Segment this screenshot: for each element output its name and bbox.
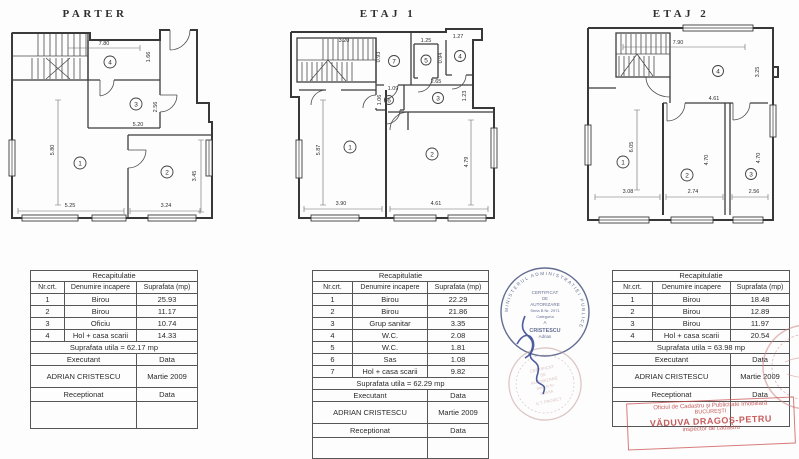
table-row: Recapitulatie	[31, 271, 198, 282]
dim-label: 3.20	[339, 38, 350, 44]
room-area: 10.74	[137, 318, 198, 330]
room-area: 2.08	[428, 330, 489, 342]
table-row	[313, 438, 489, 459]
dim-label: 3.08	[623, 189, 634, 195]
table-row: ReceptionatData	[31, 388, 198, 402]
row-nr: 3	[613, 318, 653, 330]
row-nr: 4	[613, 330, 653, 342]
room-number: 6	[387, 98, 391, 105]
room-area: 11.17	[137, 306, 198, 318]
row-nr: 2	[313, 306, 353, 318]
table-row: Nr.crt. Denumire incapere Suprafata (mp)	[313, 282, 489, 294]
table-row: 6Sas1.08	[313, 354, 489, 366]
table-row: Nr.crt. Denumire incapere Suprafata (mp)	[31, 282, 198, 294]
col-header: Suprafata (mp)	[731, 282, 790, 294]
room-area: 25.93	[137, 294, 198, 306]
dim-label: 5.20	[133, 122, 144, 128]
table-row: 4Hol + casa scarii14.33	[31, 330, 198, 342]
room-number: 1	[78, 161, 82, 168]
room-number: 2	[430, 152, 434, 159]
row-nr: 1	[613, 294, 653, 306]
row-nr: 6	[313, 354, 353, 366]
stamp-line: AUTORIZARE	[530, 302, 560, 307]
room-number: 4	[108, 60, 112, 67]
dim-label: 5.80	[50, 145, 56, 156]
total-area: Suprafata utila = 62.29 mp	[313, 378, 489, 390]
table-title: Recapitulatie	[31, 271, 198, 282]
row-nr: 4	[31, 330, 65, 342]
round-stamp-faded: CERTIFICAT DE AUTORIZARE Seria B Nr. CLA…	[502, 341, 587, 426]
total-area: Suprafata utila = 62.17 mp	[31, 342, 198, 354]
certification-stamp: MINISTERUL ADMINISTRATIEI PUBLICE CERTIF…	[497, 264, 593, 426]
room-number: 1	[348, 145, 352, 152]
room-number: 4	[716, 69, 720, 76]
room-number: 5	[424, 58, 428, 65]
cadastru-stamp: Oficiul de Cadastru şi Publicitate Imobi…	[626, 397, 796, 451]
row-nr: 1	[313, 294, 353, 306]
dim-label: 1.27	[453, 34, 464, 40]
row-nr: 7	[313, 366, 353, 378]
executant-name: ADRIAN CRISTESCU	[31, 366, 137, 388]
dim-label: 6.05	[629, 142, 635, 153]
room-area: 3.35	[428, 318, 489, 330]
room-numbers: 1 2 3 4 5 6 7	[344, 51, 466, 161]
executant-label: Executant	[613, 354, 731, 366]
executant-name: ADRIAN CRISTESCU	[613, 366, 731, 388]
door-arcs	[646, 77, 750, 121]
dim-label: 0.94	[438, 53, 444, 64]
room-number: 7	[392, 59, 396, 66]
stamp-line: A	[543, 320, 547, 325]
receptionat-label: Receptionat	[31, 388, 137, 402]
row-nr: 1	[31, 294, 65, 306]
dim-label: 3.90	[336, 201, 347, 207]
empty-cell	[428, 438, 489, 459]
room-name: Grup sanitar	[353, 318, 428, 330]
room-area: 1.81	[428, 342, 489, 354]
dim-label: 5.25	[65, 203, 76, 209]
dim-label: 4.61	[431, 201, 442, 207]
interior-walls	[588, 77, 768, 215]
data-label: Data	[428, 390, 489, 402]
room-name: Oficiu	[65, 318, 137, 330]
dim-label: 4.61	[709, 96, 720, 102]
room-area: 18.48	[731, 294, 790, 306]
table-row: Nr.crt. Denumire incapere Suprafata (mp)	[613, 282, 790, 294]
table-row: 1Birou18.48	[613, 294, 790, 306]
dim-label: 1.06	[377, 95, 383, 106]
data-label: Data	[137, 388, 198, 402]
door-arcs	[100, 30, 190, 168]
dim-label: 3.25	[755, 67, 761, 78]
dim-label: 0.93	[376, 52, 382, 63]
col-header: Nr.crt.	[613, 282, 653, 294]
col-header: Denumire incapere	[653, 282, 731, 294]
dim-label: 2.74	[688, 189, 699, 195]
table-row	[31, 402, 198, 429]
room-number: 3	[436, 96, 440, 103]
room-numbers: 1 2 3 4	[617, 66, 757, 182]
room-name: W.C.	[353, 330, 428, 342]
staircase	[297, 38, 376, 82]
windows	[585, 25, 776, 223]
table-title: Recapitulatie	[313, 271, 489, 282]
outer-walls	[291, 29, 494, 218]
stamp-line: CERTIFICAT	[532, 290, 559, 295]
room-number: 3	[134, 102, 138, 109]
dimension-lines	[18, 45, 204, 214]
empty-cell	[31, 402, 137, 429]
outer-walls	[12, 30, 212, 218]
col-header: Nr.crt.	[313, 282, 353, 294]
table-row: 5W.C.1.81	[313, 342, 489, 354]
room-numbers: 1 2 3 4	[74, 56, 173, 178]
dim-label: 4.79	[464, 157, 470, 168]
floor-plan-etaj2: ETAJ 2 7.90 3.25 4.61 6.05 4.70 4.70 3.0…	[533, 0, 799, 240]
table-row: 1Birou22.29	[313, 294, 489, 306]
stamp-line: G.T. PROIECT	[535, 396, 562, 406]
executant-label: Executant	[31, 354, 137, 366]
data-label: Data	[428, 424, 489, 438]
room-number: 3	[749, 172, 753, 179]
room-name: Birou	[65, 294, 137, 306]
table-row: 3Grup sanitar3.35	[313, 318, 489, 330]
row-nr: 2	[613, 306, 653, 318]
room-area: 22.29	[428, 294, 489, 306]
table-row: ADRIAN CRISTESCUMartie 2009	[31, 366, 198, 388]
executant-date: Martie 2009	[137, 366, 198, 388]
table-row: 2Birou21.86	[313, 306, 489, 318]
room-area: 9.82	[428, 366, 489, 378]
room-name: W.C.	[353, 342, 428, 354]
plan-title: PARTER	[62, 8, 127, 20]
stamp-line: DE	[542, 296, 548, 301]
recap-table-parter: Recapitulatie Nr.crt. Denumire incapere …	[30, 270, 198, 429]
dim-label: 4.70	[756, 153, 762, 164]
dim-label: 1.09	[388, 86, 399, 92]
table-row: 1Birou25.93	[31, 294, 198, 306]
table-row: Recapitulatie	[313, 271, 489, 282]
table-row: ReceptionatData	[313, 424, 489, 438]
table-title: Recapitulatie	[613, 271, 790, 282]
empty-cell	[313, 438, 428, 459]
room-area: 14.33	[137, 330, 198, 342]
scanned-document-page: { "page": {"background": "#fdfdfd", "ink…	[0, 0, 799, 449]
table-row: 2Birou12.89	[613, 306, 790, 318]
dim-label: 7.80	[99, 41, 110, 47]
table-row: 7Hol + casa scarii9.82	[313, 366, 489, 378]
room-number: 2	[165, 170, 169, 177]
room-name: Hol + casa scarii	[653, 330, 731, 342]
room-name: Birou	[353, 294, 428, 306]
dim-label: 3.45	[192, 171, 198, 182]
room-number: 4	[458, 54, 462, 61]
dim-label: 1.25	[421, 38, 432, 44]
table-row: 4W.C.2.08	[313, 330, 489, 342]
room-name: Birou	[65, 306, 137, 318]
room-name: Hol + casa scarii	[353, 366, 428, 378]
col-header: Suprafata (mp)	[137, 282, 198, 294]
windows	[9, 140, 212, 221]
row-nr: 5	[313, 342, 353, 354]
staircase	[12, 33, 88, 80]
recap-table: Recapitulatie Nr.crt. Denumire incapere …	[30, 270, 198, 429]
row-nr: 4	[313, 330, 353, 342]
row-nr: 3	[313, 318, 353, 330]
row-nr: 2	[31, 306, 65, 318]
dim-label: 2.56	[153, 102, 159, 113]
room-area: 12.89	[731, 306, 790, 318]
recap-table: Recapitulatie Nr.crt. Denumire incapere …	[312, 270, 489, 459]
room-name: Birou	[653, 306, 731, 318]
table-row: Suprafata utila = 62.29 mp	[313, 378, 489, 390]
table-row: ADRIAN CRISTESCUMartie 2009	[313, 402, 489, 424]
plan-title: ETAJ 1	[360, 8, 417, 20]
staircase	[616, 33, 670, 77]
table-row: Suprafata utila = 62.17 mp	[31, 342, 198, 354]
floor-plan-parter: PARTER 7.80 1.66 2.56 5.20 5.80 5.25 3.2…	[0, 0, 266, 240]
receptionat-label: Receptionat	[313, 424, 428, 438]
windows	[296, 128, 497, 221]
table-row: Recapitulatie	[613, 271, 790, 282]
stamp-line: Categoria	[536, 314, 554, 319]
dim-label: 5.87	[316, 145, 322, 156]
col-header: Denumire incapere	[65, 282, 137, 294]
dim-label: 3.24	[161, 203, 172, 209]
col-header: Denumire incapere	[353, 282, 428, 294]
plan-title: ETAJ 2	[653, 8, 710, 20]
room-number: 2	[685, 173, 689, 180]
col-header: Nr.crt.	[31, 282, 65, 294]
table-row: ExecutantData	[313, 390, 489, 402]
room-name: Birou	[653, 294, 731, 306]
dim-label: 7.90	[673, 40, 684, 46]
empty-cell	[137, 402, 198, 429]
executant-date: Martie 2009	[428, 402, 489, 424]
room-name: Birou	[353, 306, 428, 318]
dim-label: 2.56	[749, 189, 760, 195]
col-header: Suprafata (mp)	[428, 282, 489, 294]
table-row: 2Birou11.17	[31, 306, 198, 318]
room-area: 21.86	[428, 306, 489, 318]
table-row: ExecutantData	[31, 354, 198, 366]
floor-plan-etaj1: ETAJ 1 3.20 0.93 1.25 1.27 0.94 2.65 1.0…	[266, 0, 532, 240]
round-stamp-ministry: MINISTERUL ADMINISTRATIEI PUBLICE CERTIF…	[501, 268, 589, 356]
dim-label: 1.66	[146, 52, 152, 63]
data-label: Data	[137, 354, 198, 366]
room-number: 1	[621, 160, 625, 167]
room-name: Birou	[653, 318, 731, 330]
dim-label: 4.70	[704, 155, 710, 166]
room-area: 1.08	[428, 354, 489, 366]
stamp-line: Adrian	[539, 334, 552, 339]
room-name: Sas	[353, 354, 428, 366]
dim-label: 2.65	[431, 79, 442, 85]
row-nr: 3	[31, 318, 65, 330]
dim-label: 1.23	[462, 91, 468, 102]
executant-label: Executant	[313, 390, 428, 402]
recap-table-etaj1: Recapitulatie Nr.crt. Denumire incapere …	[312, 270, 489, 459]
stamp-line: Seria B Nr. 2971	[530, 308, 560, 313]
room-name: Hol + casa scarii	[65, 330, 137, 342]
table-row: 3Oficiu10.74	[31, 318, 198, 330]
executant-name: ADRIAN CRISTESCU	[313, 402, 428, 424]
